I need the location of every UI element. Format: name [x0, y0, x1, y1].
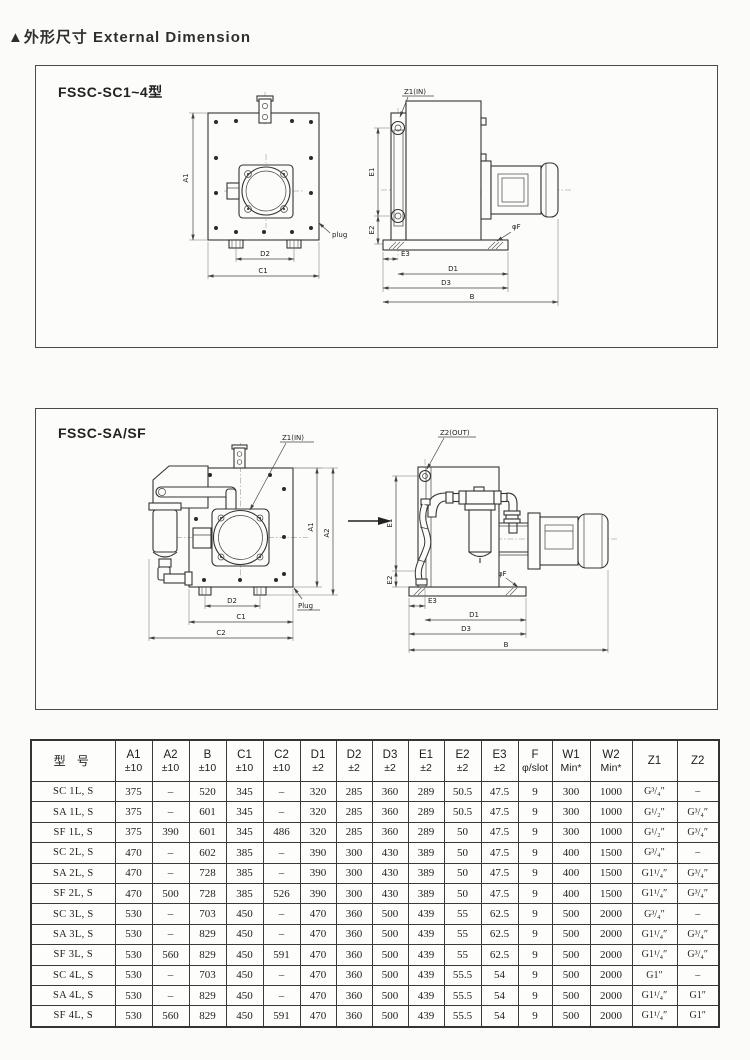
value-cell: 360: [336, 924, 372, 944]
value-cell: –: [677, 904, 719, 924]
table-row: SC 4L, S530–703450–47036050043955.554950…: [31, 965, 719, 985]
value-cell: 54: [481, 985, 518, 1005]
value-cell: –: [677, 782, 719, 802]
value-cell: 55: [444, 924, 481, 944]
value-cell: 470: [300, 924, 336, 944]
value-cell: 385: [226, 843, 263, 863]
svg-text:Z2(OUT): Z2(OUT): [440, 429, 470, 437]
value-cell: 500: [552, 985, 590, 1005]
value-cell: 62.5: [481, 945, 518, 965]
column-header: D3±2: [372, 740, 408, 782]
value-cell: 450: [226, 985, 263, 1005]
dimension-e2: E2: [368, 216, 383, 244]
value-cell: –: [263, 965, 300, 985]
value-cell: G1″: [677, 1006, 719, 1027]
dimension-d2: D2: [236, 248, 294, 262]
value-cell: 560: [152, 945, 189, 965]
value-cell: G³/₄″: [632, 843, 677, 863]
value-cell: 50: [444, 822, 481, 842]
motor-endcap: [578, 514, 608, 568]
table-row: SC 2L, S470–602385–3903004303895047.5940…: [31, 843, 719, 863]
value-cell: 55: [444, 904, 481, 924]
value-cell: 50.5: [444, 802, 481, 822]
value-cell: G1¹/₄″: [632, 1006, 677, 1027]
value-cell: 385: [226, 883, 263, 903]
drawing-fssc-sa-sf: Z1(IN) A1 A2 D2: [36, 409, 717, 709]
value-cell: 1000: [590, 802, 632, 822]
lifting-bracket: [257, 96, 273, 123]
value-cell: 530: [115, 945, 152, 965]
model-cell: SF 2L, S: [31, 883, 115, 903]
dimension-c1: C1: [208, 242, 319, 279]
value-cell: G³/₄″: [677, 924, 719, 944]
value-cell: 526: [263, 883, 300, 903]
table-row: SC 3L, S530–703450–4703605004395562.5950…: [31, 904, 719, 924]
value-cell: 450: [226, 1006, 263, 1027]
value-cell: 54: [481, 965, 518, 985]
svg-text:plug: plug: [332, 231, 347, 239]
value-cell: 55: [444, 945, 481, 965]
lifting-bracket: [232, 445, 247, 468]
phif-callout: φF: [498, 570, 518, 587]
value-cell: 470: [115, 863, 152, 883]
value-cell: G³/₄″: [677, 802, 719, 822]
value-cell: 530: [115, 985, 152, 1005]
value-cell: 530: [115, 965, 152, 985]
value-cell: 500: [372, 965, 408, 985]
value-cell: 829: [189, 1006, 226, 1027]
value-cell: 470: [115, 843, 152, 863]
table-row: SA 3L, S530–829450–4703605004395562.5950…: [31, 924, 719, 944]
value-cell: 54: [481, 1006, 518, 1027]
dimension-a1: A1: [293, 468, 322, 587]
value-cell: 385: [226, 863, 263, 883]
value-cell: 829: [189, 985, 226, 1005]
value-cell: 9: [518, 802, 552, 822]
value-cell: 470: [300, 945, 336, 965]
value-cell: 450: [226, 945, 263, 965]
value-cell: 470: [300, 985, 336, 1005]
pump-flange: [239, 165, 293, 218]
svg-text:Z1(IN): Z1(IN): [404, 88, 426, 96]
svg-text:E1: E1: [386, 519, 394, 528]
value-cell: 500: [552, 1006, 590, 1027]
value-cell: 829: [189, 945, 226, 965]
dimension-a1: A1: [182, 113, 208, 240]
value-cell: 2000: [590, 965, 632, 985]
value-cell: 439: [408, 924, 444, 944]
value-cell: 703: [189, 904, 226, 924]
value-cell: G1″: [677, 985, 719, 1005]
value-cell: 400: [552, 843, 590, 863]
svg-text:E3: E3: [401, 250, 410, 258]
value-cell: 360: [336, 985, 372, 1005]
svg-text:C1: C1: [236, 613, 245, 621]
value-cell: –: [263, 782, 300, 802]
dimension-e3: E3: [383, 250, 410, 292]
model-cell: SC 1L, S: [31, 782, 115, 802]
figure-fssc-sa-sf: FSSC-SA/SF: [35, 408, 718, 710]
value-cell: 285: [336, 822, 372, 842]
value-cell: 9: [518, 904, 552, 924]
value-cell: 360: [372, 822, 408, 842]
value-cell: 470: [115, 883, 152, 903]
column-header: D1±2: [300, 740, 336, 782]
value-cell: G³/₄″: [632, 782, 677, 802]
model-cell: SA 3L, S: [31, 924, 115, 944]
column-header: W1Min*: [552, 740, 590, 782]
svg-text:D1: D1: [448, 265, 458, 273]
phif-callout: φF: [497, 223, 521, 241]
z2-callout: Z2(OUT): [427, 429, 476, 469]
value-cell: 450: [226, 924, 263, 944]
column-header: Z1: [632, 740, 677, 782]
value-cell: –: [677, 965, 719, 985]
feet: [199, 587, 266, 595]
value-cell: –: [152, 802, 189, 822]
value-cell: 829: [189, 924, 226, 944]
value-cell: 9: [518, 883, 552, 903]
value-cell: 500: [552, 924, 590, 944]
dimension-c2: C2: [149, 559, 293, 641]
value-cell: 360: [336, 945, 372, 965]
value-cell: 300: [552, 802, 590, 822]
svg-text:A2: A2: [323, 528, 331, 537]
svg-text:E2: E2: [386, 576, 394, 585]
value-cell: 62.5: [481, 924, 518, 944]
value-cell: 470: [300, 1006, 336, 1027]
table-row: SF 3L, S5305608294505914703605004395562.…: [31, 945, 719, 965]
column-header: D2±2: [336, 740, 372, 782]
value-cell: 50: [444, 863, 481, 883]
value-cell: 430: [372, 863, 408, 883]
svg-text:D3: D3: [461, 625, 471, 633]
svg-text:C1: C1: [258, 267, 267, 275]
side-fitting: [227, 183, 239, 199]
value-cell: G1¹/₄″: [632, 863, 677, 883]
value-cell: 390: [300, 843, 336, 863]
table-row: SA 4L, S530–829450–47036050043955.554950…: [31, 985, 719, 1005]
value-cell: 400: [552, 883, 590, 903]
model-cell: SA 2L, S: [31, 863, 115, 883]
value-cell: 345: [226, 802, 263, 822]
svg-text:B: B: [504, 641, 509, 649]
dimension-e1: E1: [368, 128, 391, 216]
value-cell: 320: [300, 782, 336, 802]
value-cell: 360: [336, 965, 372, 985]
value-cell: 728: [189, 883, 226, 903]
column-header: Fφ/slot: [518, 740, 552, 782]
side-view: Z1(IN) φF E1 E2: [368, 88, 571, 306]
value-cell: 285: [336, 782, 372, 802]
value-cell: 1500: [590, 863, 632, 883]
value-cell: 300: [336, 843, 372, 863]
column-header: Z2: [677, 740, 719, 782]
svg-text:A1: A1: [307, 522, 315, 531]
column-header: A2±10: [152, 740, 189, 782]
value-cell: G1″: [632, 965, 677, 985]
dimension-e2: E2: [386, 571, 409, 587]
svg-text:B: B: [470, 293, 475, 301]
dimension-a2: A2: [266, 468, 338, 595]
value-cell: 530: [115, 924, 152, 944]
value-cell: 389: [408, 843, 444, 863]
value-cell: 500: [552, 945, 590, 965]
dimension-d1: D1: [398, 252, 508, 292]
value-cell: 9: [518, 985, 552, 1005]
front-view: A1 D2 C1 plug: [182, 92, 347, 279]
value-cell: G¹/₂″: [632, 822, 677, 842]
value-cell: 601: [189, 822, 226, 842]
value-cell: G³/₄″: [632, 904, 677, 924]
figure-fssc-sc1-4: FSSC-SC1~4型: [35, 65, 718, 348]
value-cell: 470: [300, 965, 336, 985]
value-cell: –: [152, 863, 189, 883]
value-cell: 602: [189, 843, 226, 863]
value-cell: G1¹/₄″: [632, 945, 677, 965]
value-cell: 500: [372, 1006, 408, 1027]
value-cell: 47.5: [481, 863, 518, 883]
filter: [149, 503, 192, 585]
value-cell: 9: [518, 782, 552, 802]
value-cell: 530: [115, 1006, 152, 1027]
value-cell: 2000: [590, 985, 632, 1005]
drawing-fssc-sc1-4: A1 D2 C1 plug: [36, 66, 717, 347]
value-cell: 47.5: [481, 802, 518, 822]
model-cell: SF 3L, S: [31, 945, 115, 965]
value-cell: 289: [408, 782, 444, 802]
model-cell: SF 4L, S: [31, 1006, 115, 1027]
z1-callout: Z1(IN): [250, 434, 314, 510]
value-cell: 450: [226, 904, 263, 924]
base-plate: [383, 240, 508, 250]
value-cell: 375: [115, 822, 152, 842]
value-cell: 2000: [590, 1006, 632, 1027]
value-cell: 439: [408, 945, 444, 965]
value-cell: 470: [300, 904, 336, 924]
value-cell: 360: [336, 1006, 372, 1027]
value-cell: 439: [408, 904, 444, 924]
svg-text:Z1(IN): Z1(IN): [282, 434, 304, 442]
value-cell: 439: [408, 1006, 444, 1027]
value-cell: G1¹/₄″: [632, 924, 677, 944]
value-cell: 486: [263, 822, 300, 842]
value-cell: –: [152, 924, 189, 944]
plug-callout: Plug: [294, 588, 320, 610]
column-header: B±10: [189, 740, 226, 782]
value-cell: –: [152, 965, 189, 985]
value-cell: 9: [518, 1006, 552, 1027]
tank-side: [406, 101, 481, 240]
svg-text:C2: C2: [216, 629, 225, 637]
value-cell: 2000: [590, 945, 632, 965]
value-cell: 530: [115, 904, 152, 924]
value-cell: 47.5: [481, 843, 518, 863]
value-cell: 9: [518, 843, 552, 863]
value-cell: 1000: [590, 822, 632, 842]
value-cell: 50: [444, 883, 481, 903]
value-cell: 47.5: [481, 822, 518, 842]
value-cell: G³/₄″: [677, 883, 719, 903]
value-cell: 1500: [590, 883, 632, 903]
column-header: W2Min*: [590, 740, 632, 782]
dimension-e1: E1: [386, 476, 419, 571]
value-cell: 9: [518, 924, 552, 944]
feet: [229, 240, 301, 248]
motor-flange: [528, 513, 540, 569]
front-view: Z1(IN) A1 A2 D2: [149, 434, 338, 641]
value-cell: –: [152, 904, 189, 924]
svg-text:φF: φF: [512, 223, 521, 231]
column-header: 型 号: [31, 740, 115, 782]
table-row: SA 2L, S470–728385–3903004303895047.5940…: [31, 863, 719, 883]
value-cell: 289: [408, 822, 444, 842]
model-cell: SC 3L, S: [31, 904, 115, 924]
value-cell: 9: [518, 945, 552, 965]
valve-body: [466, 491, 494, 504]
value-cell: 703: [189, 965, 226, 985]
value-cell: 500: [152, 883, 189, 903]
plug-callout: plug: [319, 223, 347, 239]
motor-body: [540, 517, 578, 565]
model-cell: SA 4L, S: [31, 985, 115, 1005]
value-cell: –: [152, 985, 189, 1005]
motor: [481, 161, 558, 219]
side-view: Z2(OUT): [386, 429, 618, 653]
svg-text:φF: φF: [498, 570, 507, 578]
column-header: C2±10: [263, 740, 300, 782]
svg-text:D2: D2: [260, 250, 270, 258]
column-header: C1±10: [226, 740, 263, 782]
column-header: E3±2: [481, 740, 518, 782]
value-cell: 591: [263, 1006, 300, 1027]
value-cell: 285: [336, 802, 372, 822]
svg-text:D1: D1: [469, 611, 479, 619]
table-row: SF 4L, S53056082945059147036050043955.55…: [31, 1006, 719, 1027]
value-cell: 389: [408, 883, 444, 903]
table-header: 型 号A1±10A2±10B±10C1±10C2±10D1±2D2±2D3±2E…: [31, 740, 719, 782]
value-cell: –: [152, 843, 189, 863]
value-cell: 500: [552, 965, 590, 985]
value-cell: –: [263, 904, 300, 924]
column-header: E1±2: [408, 740, 444, 782]
model-cell: SF 1L, S: [31, 822, 115, 842]
value-cell: 430: [372, 883, 408, 903]
value-cell: 2000: [590, 904, 632, 924]
value-cell: 55.5: [444, 965, 481, 985]
value-cell: 375: [115, 802, 152, 822]
value-cell: 50.5: [444, 782, 481, 802]
value-cell: –: [263, 924, 300, 944]
value-cell: 50: [444, 843, 481, 863]
value-cell: –: [263, 802, 300, 822]
table-row: SC 1L, S375–520345–32028536028950.547.59…: [31, 782, 719, 802]
value-cell: 728: [189, 863, 226, 883]
value-cell: G³/₄″: [677, 945, 719, 965]
model-cell: SC 4L, S: [31, 965, 115, 985]
value-cell: G1¹/₄″: [632, 883, 677, 903]
value-cell: 345: [226, 822, 263, 842]
value-cell: 520: [189, 782, 226, 802]
svg-text:D2: D2: [227, 597, 237, 605]
value-cell: 1000: [590, 782, 632, 802]
value-cell: 320: [300, 802, 336, 822]
value-cell: 9: [518, 863, 552, 883]
svg-text:A1: A1: [182, 173, 190, 182]
page-title: ▲外形尺寸 External Dimension: [8, 26, 251, 47]
value-cell: 500: [372, 945, 408, 965]
value-cell: –: [263, 843, 300, 863]
value-cell: 47.5: [481, 883, 518, 903]
value-cell: 375: [115, 782, 152, 802]
svg-text:E2: E2: [368, 226, 376, 235]
value-cell: 390: [152, 822, 189, 842]
svg-text:Plug: Plug: [298, 602, 313, 610]
table-row: SF 2L, S4705007283855263903004303895047.…: [31, 883, 719, 903]
column-header: E2±2: [444, 740, 481, 782]
value-cell: 360: [336, 904, 372, 924]
value-cell: 560: [152, 1006, 189, 1027]
value-cell: 390: [300, 883, 336, 903]
value-cell: 591: [263, 945, 300, 965]
value-cell: 601: [189, 802, 226, 822]
dimension-d3: D3: [383, 279, 508, 288]
value-cell: 300: [552, 782, 590, 802]
dimension-d2: D2: [205, 596, 260, 609]
model-cell: SC 2L, S: [31, 843, 115, 863]
value-cell: 430: [372, 843, 408, 863]
value-cell: 62.5: [481, 904, 518, 924]
value-cell: 500: [552, 904, 590, 924]
value-cell: 345: [226, 782, 263, 802]
dimension-table: 型 号A1±10A2±10B±10C1±10C2±10D1±2D2±2D3±2E…: [30, 739, 720, 1028]
value-cell: 390: [300, 863, 336, 883]
value-cell: –: [263, 985, 300, 1005]
value-cell: 300: [336, 883, 372, 903]
base-plate: [409, 587, 526, 596]
model-cell: SA 1L, S: [31, 802, 115, 822]
value-cell: –: [152, 782, 189, 802]
value-cell: 300: [552, 822, 590, 842]
value-cell: 439: [408, 985, 444, 1005]
value-cell: 320: [300, 822, 336, 842]
side-fitting: [193, 528, 211, 548]
pump-flange: [212, 509, 269, 566]
column-header: A1±10: [115, 740, 152, 782]
svg-text:E3: E3: [428, 597, 437, 605]
value-cell: 360: [372, 802, 408, 822]
value-cell: 2000: [590, 924, 632, 944]
value-cell: 400: [552, 863, 590, 883]
value-cell: 300: [336, 863, 372, 883]
svg-text:E1: E1: [368, 168, 376, 177]
value-cell: 55.5: [444, 985, 481, 1005]
level-gauge: [391, 113, 406, 240]
value-cell: 360: [372, 782, 408, 802]
value-cell: 9: [518, 965, 552, 985]
value-cell: 439: [408, 965, 444, 985]
value-cell: –: [263, 863, 300, 883]
table-row: SA 1L, S375–601345–32028536028950.547.59…: [31, 802, 719, 822]
value-cell: 500: [372, 985, 408, 1005]
value-cell: –: [677, 843, 719, 863]
value-cell: G¹/₂″: [632, 802, 677, 822]
value-cell: 55.5: [444, 1006, 481, 1027]
value-cell: G³/₄″: [677, 863, 719, 883]
table-row: SF 1L, S3753906013454863202853602895047.…: [31, 822, 719, 842]
value-cell: 9: [518, 822, 552, 842]
svg-text:D3: D3: [441, 279, 451, 287]
